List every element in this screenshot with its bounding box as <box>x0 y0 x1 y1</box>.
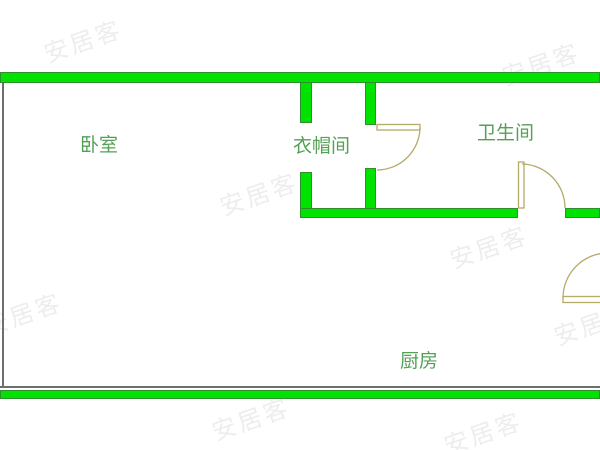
door-cloakroom <box>377 125 420 171</box>
door-swings-layer <box>0 0 600 450</box>
floorplan-image: 安居客 安居客 安居客 安居客 安居客 安居客 安居客 安居客 <box>0 0 600 450</box>
room-label-bedroom: 卧室 <box>80 136 118 156</box>
door-right-partial <box>563 253 600 303</box>
room-label-kitchen: 厨房 <box>400 352 438 372</box>
room-label-cloakroom: 衣帽间 <box>293 137 350 157</box>
door-bathroom <box>519 162 566 208</box>
room-label-bathroom: 卫生间 <box>477 124 534 144</box>
